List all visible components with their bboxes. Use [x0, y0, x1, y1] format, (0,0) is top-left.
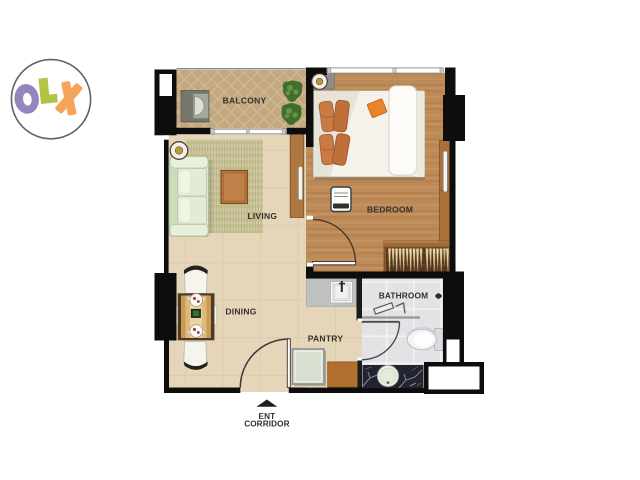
- svg-text:PANTRY: PANTRY: [308, 333, 344, 343]
- svg-text:BATHROOM: BATHROOM: [379, 291, 428, 301]
- svg-text:LIVING: LIVING: [247, 211, 277, 221]
- svg-text:DINING: DINING: [225, 307, 256, 317]
- svg-text:BEDROOM: BEDROOM: [367, 204, 413, 214]
- svg-text:BALCONY: BALCONY: [223, 95, 267, 105]
- svg-text:CORRIDOR: CORRIDOR: [244, 419, 289, 428]
